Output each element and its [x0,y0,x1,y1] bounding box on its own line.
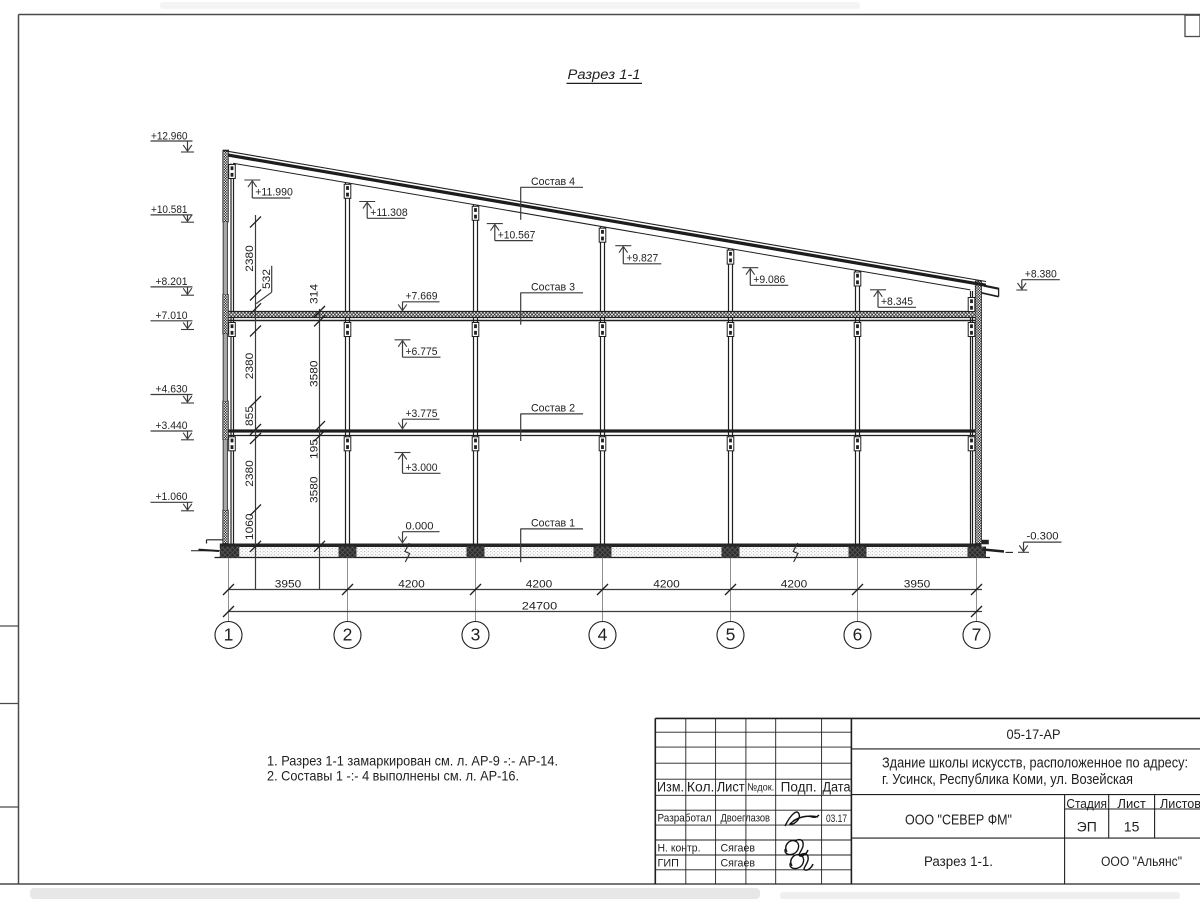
svg-text:1. Разрез 1-1 замаркирован см.: 1. Разрез 1-1 замаркирован см. л. АР-9 -… [267,753,558,769]
svg-text:3950: 3950 [904,578,931,590]
svg-text:Состав 1: Состав 1 [531,517,575,529]
svg-text:1: 1 [224,625,234,645]
svg-text:-0.300: -0.300 [1027,531,1059,543]
svg-text:+3.775: +3.775 [406,408,438,420]
svg-text:2. Составы 1 -:- 4 выполнены с: 2. Составы 1 -:- 4 выполнены см. л. АР-1… [267,768,519,784]
svg-text:Лист: Лист [717,779,745,794]
svg-text:ГИП: ГИП [658,858,679,870]
svg-text:г. Усинск, Республика Коми, ул: г. Усинск, Республика Коми, ул. Возейска… [882,772,1133,788]
svg-text:Сягаев: Сягаев [721,843,756,855]
svg-text:1060: 1060 [244,513,256,540]
svg-text:4200: 4200 [781,578,808,590]
svg-text:+4.630: +4.630 [156,383,188,395]
svg-text:+3.000: +3.000 [406,462,438,474]
svg-text:2380: 2380 [244,460,256,487]
svg-text:Разработал: Разработал [658,813,712,825]
svg-text:Листов: Листов [1160,796,1200,811]
svg-text:Лист: Лист [1117,796,1146,811]
svg-text:+3.440: +3.440 [156,420,188,432]
svg-text:2380: 2380 [244,353,256,380]
svg-text:Подп.: Подп. [781,779,817,794]
svg-text:6: 6 [853,625,863,645]
svg-text:+8.345: +8.345 [881,296,913,308]
svg-text:4: 4 [598,625,608,645]
svg-text:7: 7 [972,625,982,645]
svg-text:0.000: 0.000 [406,520,434,532]
svg-text:Разрез 1-1.: Разрез 1-1. [924,854,993,869]
svg-text:ООО "Альянс": ООО "Альянс" [1101,854,1182,869]
svg-text:Изм.: Изм. [657,779,684,794]
svg-text:Сягаев: Сягаев [721,858,756,870]
svg-text:532: 532 [261,269,273,289]
svg-text:3580: 3580 [308,360,320,387]
svg-text:+9.827: +9.827 [626,253,658,265]
svg-text:ООО "СЕВЕР ФМ": ООО "СЕВЕР ФМ" [905,813,1012,829]
svg-text:24700: 24700 [522,601,558,613]
svg-text:Разрез 1-1: Разрез 1-1 [568,67,641,83]
svg-text:ЭП: ЭП [1077,819,1097,835]
svg-text:Состав 2: Состав 2 [531,402,575,414]
svg-text:Кол.: Кол. [687,779,715,794]
svg-text:15: 15 [1124,819,1140,835]
svg-text:Состав 4: Состав 4 [531,176,575,188]
svg-text:+9.086: +9.086 [753,274,785,286]
svg-text:3580: 3580 [308,476,320,503]
svg-text:4200: 4200 [398,578,425,590]
svg-text:05-17-АР: 05-17-АР [1007,726,1061,742]
svg-text:2380: 2380 [244,245,256,272]
svg-text:Здание школы искусств, располо: Здание школы искусств, расположенное по … [882,756,1188,772]
svg-text:+6.775: +6.775 [406,346,438,358]
svg-text:+8.380: +8.380 [1025,269,1057,281]
svg-text:855: 855 [244,406,256,426]
svg-text:Дата: Дата [823,779,851,794]
svg-text:Стадия: Стадия [1066,796,1107,811]
svg-text:5: 5 [726,625,736,645]
svg-text:3: 3 [471,625,481,645]
svg-text:+11.308: +11.308 [370,207,408,219]
svg-text:+11.990: +11.990 [255,187,292,199]
svg-text:+7.669: +7.669 [406,291,438,303]
svg-text:№док.: №док. [747,782,774,794]
svg-text:195: 195 [308,439,320,459]
svg-text:314: 314 [308,284,320,304]
svg-text:2: 2 [343,625,353,645]
svg-text:4200: 4200 [526,578,553,590]
svg-text:03.17: 03.17 [826,813,847,825]
svg-text:Н. контр.: Н. контр. [658,843,701,855]
svg-text:Двоеглазов: Двоеглазов [721,813,771,825]
svg-text:+10.567: +10.567 [498,229,536,241]
svg-text:3950: 3950 [275,578,302,590]
svg-text:+7.010: +7.010 [156,310,188,322]
svg-text:Состав 3: Состав 3 [531,281,575,293]
svg-text:+1.060: +1.060 [156,491,188,503]
svg-text:4200: 4200 [653,578,680,590]
